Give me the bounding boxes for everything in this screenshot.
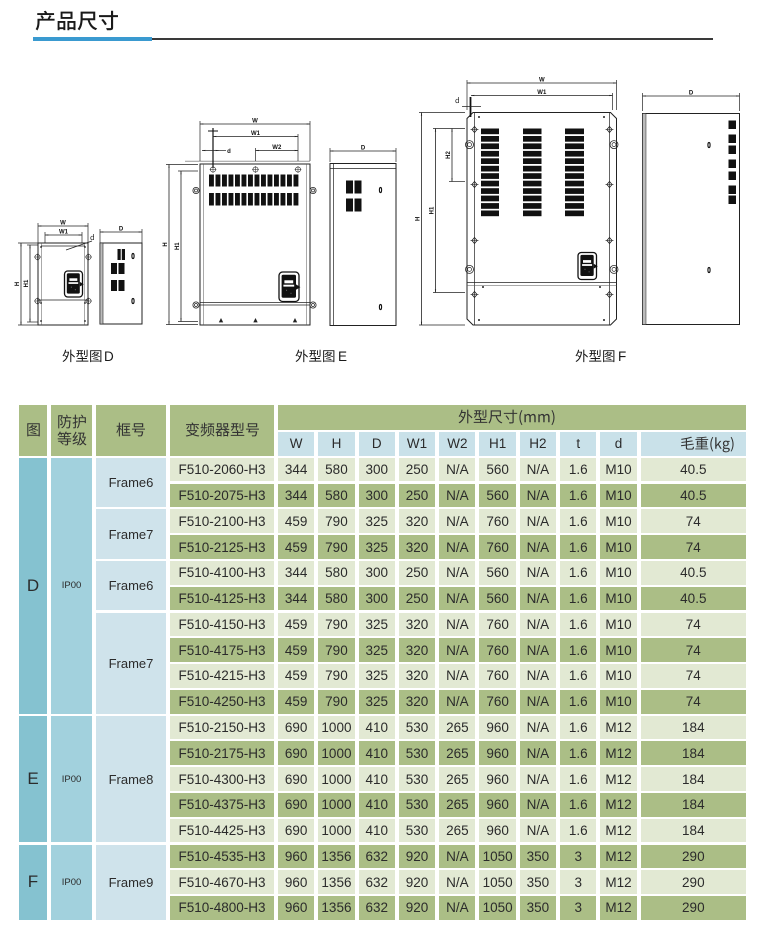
svg-text:H1: H1 bbox=[24, 279, 30, 287]
svg-text:W: W bbox=[539, 78, 545, 84]
svg-text:D: D bbox=[361, 146, 366, 152]
svg-text:D: D bbox=[104, 349, 114, 364]
svg-text:H: H bbox=[416, 217, 422, 221]
svg-text:W1: W1 bbox=[537, 90, 547, 96]
svg-text:W: W bbox=[60, 221, 66, 227]
svg-text:H1: H1 bbox=[430, 206, 436, 214]
svg-text:d: d bbox=[227, 149, 231, 155]
svg-text:H: H bbox=[15, 282, 21, 286]
svg-text:H2: H2 bbox=[446, 151, 452, 159]
svg-text:W1: W1 bbox=[251, 131, 261, 137]
svg-text:D: D bbox=[119, 227, 124, 233]
svg-text:W1: W1 bbox=[59, 230, 69, 236]
svg-text:W2: W2 bbox=[272, 145, 282, 151]
svg-text:W: W bbox=[252, 119, 258, 125]
svg-text:H: H bbox=[163, 242, 169, 246]
svg-text:F: F bbox=[618, 349, 626, 364]
svg-text:D: D bbox=[689, 91, 694, 97]
svg-text:H1: H1 bbox=[175, 242, 181, 250]
svg-text:E: E bbox=[338, 349, 347, 364]
